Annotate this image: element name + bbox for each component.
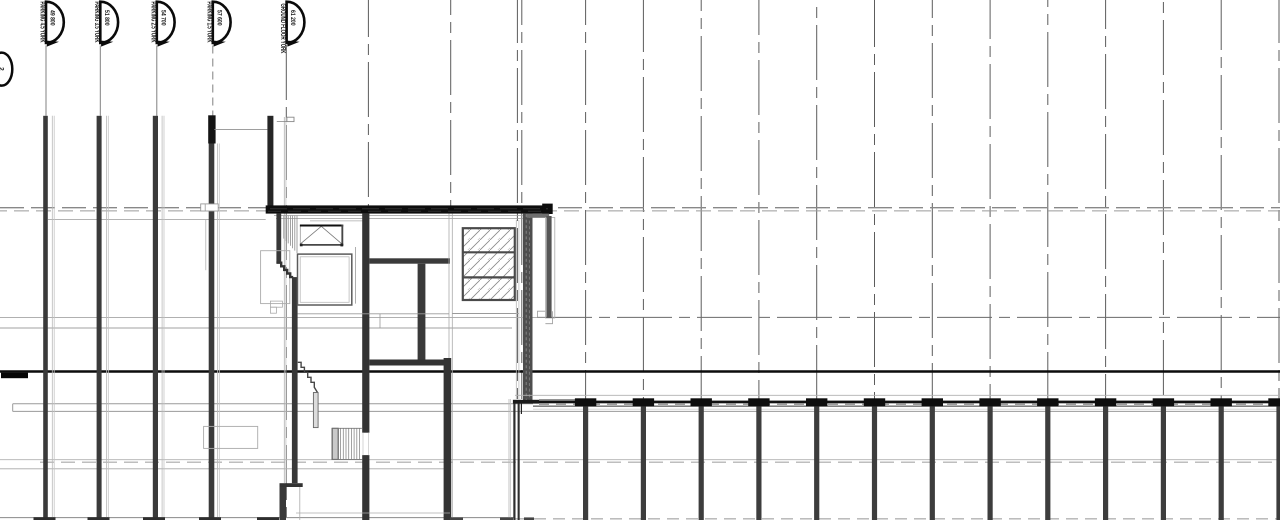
svg-text:54 700: 54 700 (159, 10, 166, 26)
svg-text:GROUND FLOOR YORK: GROUND FLOOR YORK (279, 4, 286, 54)
svg-text:PARKING 4.5 YORK: PARKING 4.5 YORK (39, 1, 46, 42)
svg-text:PARKING 1.5 YORK: PARKING 1.5 YORK (205, 2, 212, 43)
svg-text:49 800: 49 800 (49, 10, 56, 26)
svg-text:51 800: 51 800 (103, 10, 110, 26)
svg-text:2: 2 (0, 67, 5, 71)
svg-text:57 600: 57 600 (215, 10, 222, 26)
svg-text:61 200: 61 200 (289, 10, 296, 26)
svg-text:PARKING 3.5 YORK: PARKING 3.5 YORK (93, 1, 100, 42)
svg-text:PARKING 2.5 YORK: PARKING 2.5 YORK (149, 2, 156, 43)
